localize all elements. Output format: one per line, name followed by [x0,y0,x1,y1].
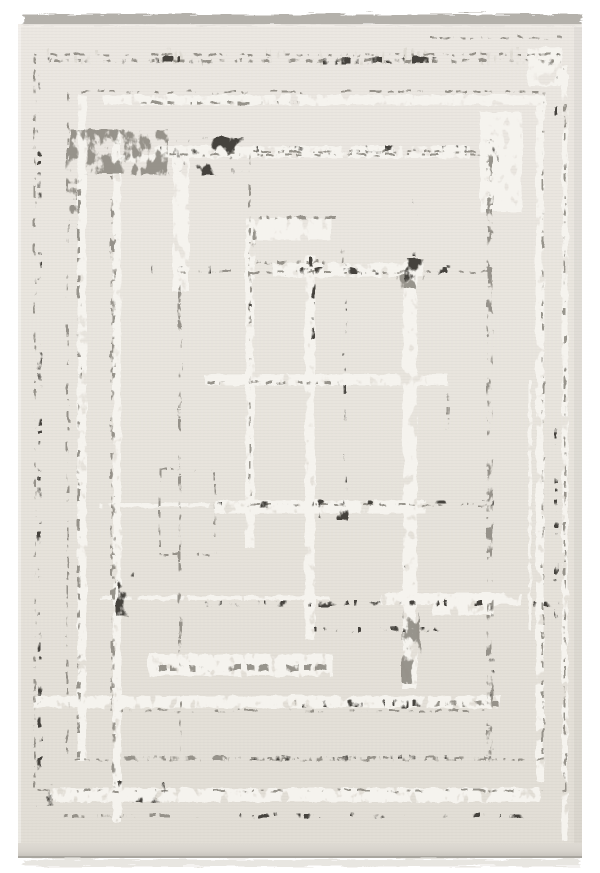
rug-image [0,0,600,873]
product-photo-page [0,0,600,873]
rug-photo [0,0,600,873]
